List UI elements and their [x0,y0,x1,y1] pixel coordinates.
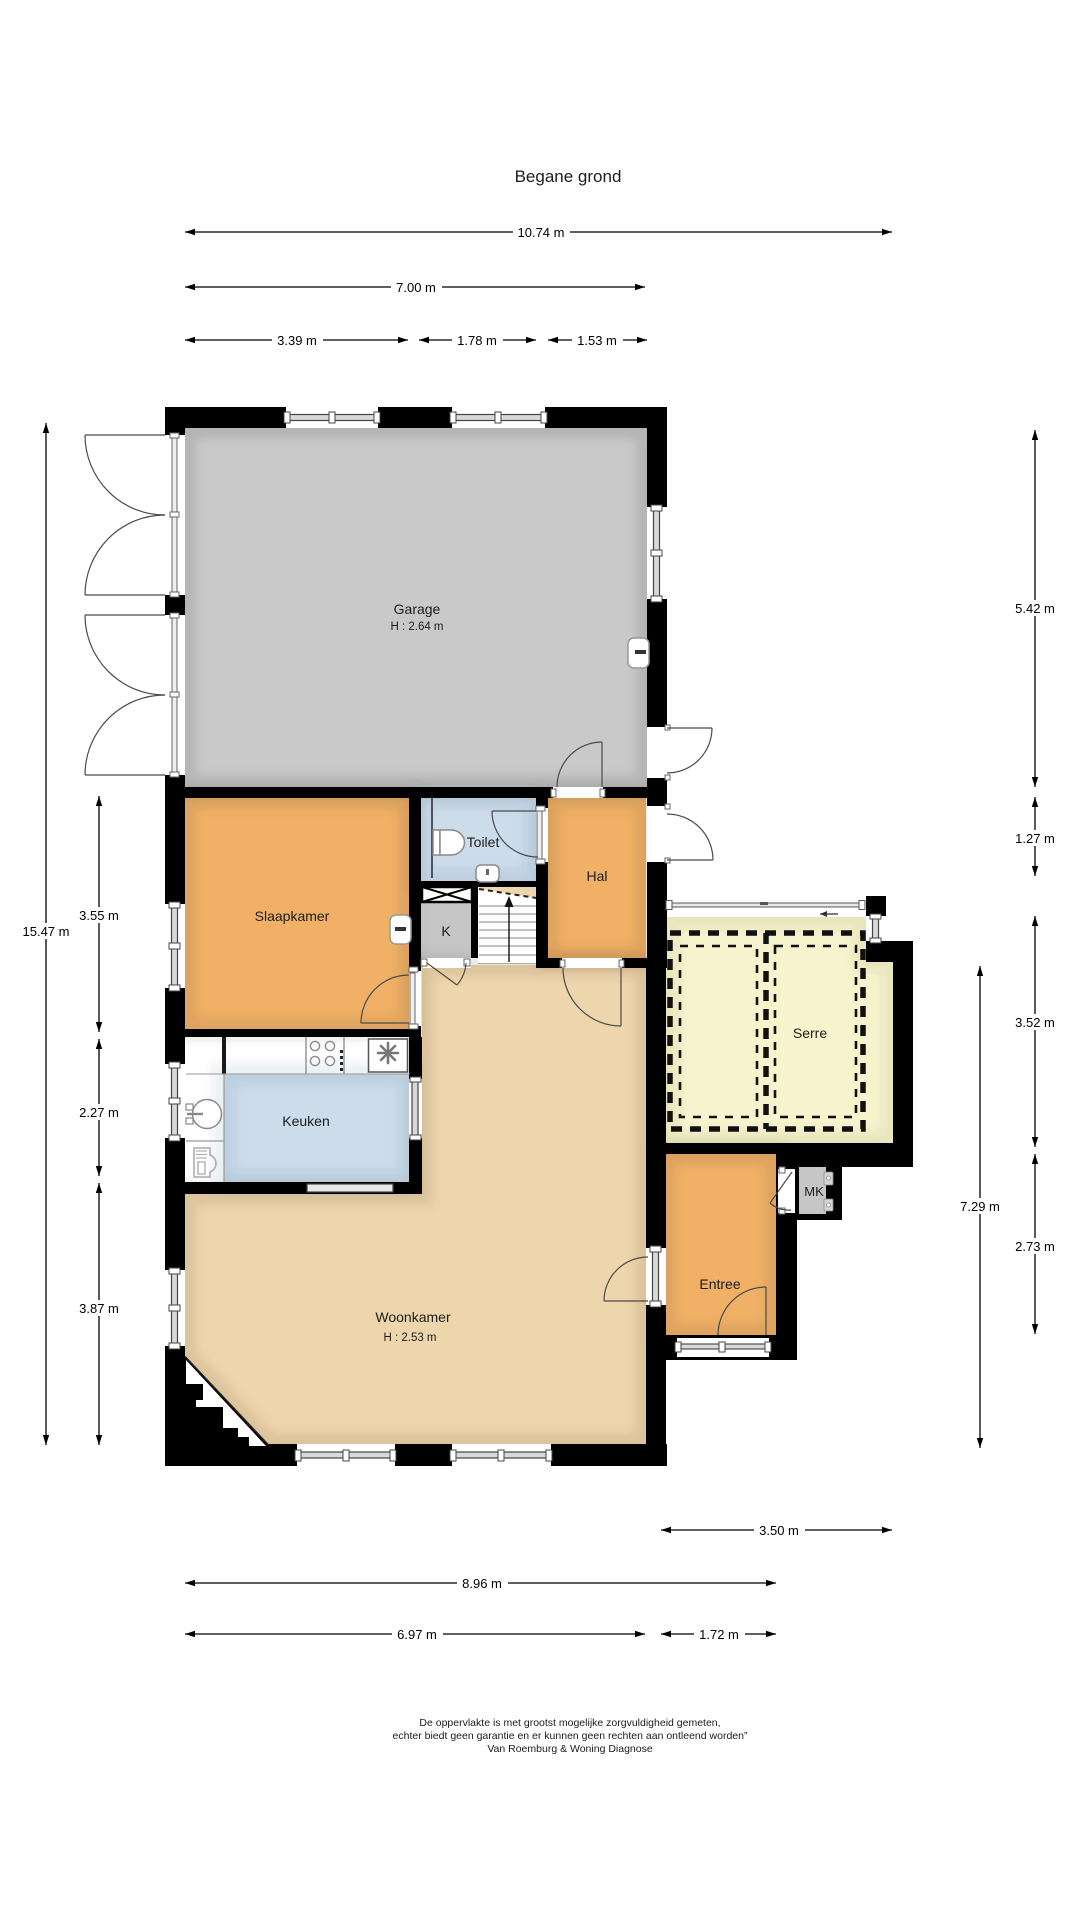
svg-text:Toilet: Toilet [467,834,500,850]
svg-text:Entree: Entree [699,1276,740,1292]
svg-text:3.52 m: 3.52 m [1015,1015,1055,1030]
svg-text:MK: MK [804,1184,824,1199]
svg-text:Slaapkamer: Slaapkamer [255,908,330,924]
svg-text:3.87 m: 3.87 m [79,1301,119,1316]
svg-text:Garage: Garage [394,601,441,617]
svg-text:1.53 m: 1.53 m [577,333,617,348]
svg-text:K: K [441,923,451,939]
svg-text:H : 2.64 m: H : 2.64 m [390,621,443,633]
svg-text:2.27 m: 2.27 m [79,1105,119,1120]
svg-text:Hal: Hal [586,868,607,884]
svg-text:3.50 m: 3.50 m [759,1523,799,1538]
svg-text:10.74 m: 10.74 m [518,225,565,240]
svg-text:7.00 m: 7.00 m [396,280,436,295]
svg-text:3.39 m: 3.39 m [277,333,317,348]
svg-text:Van Roemburg & Woning Diagnose: Van Roemburg & Woning Diagnose [487,1743,653,1755]
svg-text:6.97 m: 6.97 m [397,1627,437,1642]
svg-text:De oppervlakte is met grootst: De oppervlakte is met grootst mogelijke … [419,1717,720,1729]
svg-text:1.27 m: 1.27 m [1015,831,1055,846]
svg-text:15.47 m: 15.47 m [23,924,70,939]
svg-text:1.78 m: 1.78 m [457,333,497,348]
svg-text:Begane grond: Begane grond [515,167,622,186]
svg-text:5.42 m: 5.42 m [1015,601,1055,616]
svg-text:1.72 m: 1.72 m [699,1627,739,1642]
svg-text:2.73 m: 2.73 m [1015,1239,1055,1254]
svg-text:Keuken: Keuken [282,1113,329,1129]
svg-text:echter biedt geen garantie en: echter biedt geen garantie en er kunnen … [393,1730,748,1742]
svg-text:Woonkamer: Woonkamer [375,1309,451,1325]
svg-text:7.29 m: 7.29 m [960,1199,1000,1214]
svg-text:8.96 m: 8.96 m [462,1576,502,1591]
svg-text:H : 2.53 m: H : 2.53 m [383,1332,436,1344]
svg-text:Serre: Serre [793,1025,827,1041]
svg-text:3.55 m: 3.55 m [79,908,119,923]
